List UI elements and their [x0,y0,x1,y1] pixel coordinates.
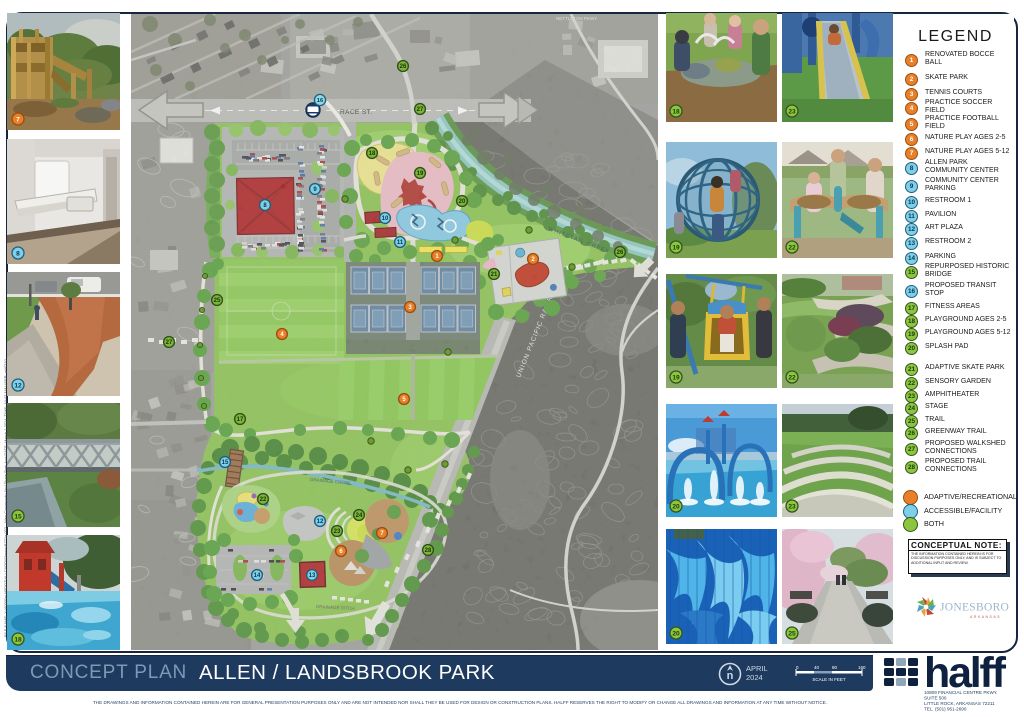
svg-text:11: 11 [397,240,404,246]
svg-text:LITTLE ROCK, ARKANSAS 72211: LITTLE ROCK, ARKANSAS 72211 [924,701,995,706]
svg-text:18: 18 [14,636,22,643]
svg-text:17: 17 [237,417,244,423]
svg-text:TEL. (501) 951-2690: TEL. (501) 951-2690 [924,707,967,712]
svg-text:16: 16 [317,98,324,104]
svg-text:19: 19 [672,244,680,251]
svg-text:14: 14 [254,573,261,579]
svg-text:22: 22 [260,497,267,503]
svg-text:SCALE IN FEET: SCALE IN FEET [812,677,846,682]
svg-text:26: 26 [617,250,624,256]
svg-text:JONESBORO: JONESBORO [940,602,1009,614]
svg-text:18: 18 [369,151,376,157]
svg-text:8: 8 [16,250,20,257]
svg-text:19: 19 [672,374,680,381]
svg-text:15: 15 [222,460,229,466]
svg-text:19: 19 [417,171,424,177]
svg-text:40: 40 [814,665,820,670]
svg-text:25: 25 [788,630,796,637]
svg-text:27: 27 [166,340,173,346]
svg-text:18: 18 [672,108,680,115]
svg-text:80: 80 [832,665,838,670]
svg-text:26: 26 [400,64,407,70]
svg-text:n: n [727,670,734,682]
svg-text:10: 10 [382,216,389,222]
svg-text:28: 28 [425,548,432,554]
svg-text:20: 20 [672,503,680,510]
svg-text:7: 7 [16,116,20,123]
svg-text:10809 FINANCIAL CENTRE PKWY.: 10809 FINANCIAL CENTRE PKWY. [924,690,998,695]
svg-text:21: 21 [491,272,498,278]
svg-text:12: 12 [317,519,324,525]
svg-text:SUITE 500: SUITE 500 [924,696,947,701]
svg-text:12: 12 [14,382,22,389]
svg-text:ARKANSAS: ARKANSAS [970,615,1001,619]
svg-text:27: 27 [417,107,424,113]
svg-text:22: 22 [788,374,796,381]
svg-text:22: 22 [788,244,796,251]
svg-text:13: 13 [309,573,316,579]
svg-text:23: 23 [334,529,341,535]
svg-text:20: 20 [459,199,466,205]
svg-text:15: 15 [14,513,22,520]
svg-text:24: 24 [356,513,363,519]
svg-text:20: 20 [672,630,680,637]
svg-text:23: 23 [788,108,796,115]
svg-text:25: 25 [214,298,221,304]
svg-text:23: 23 [788,503,796,510]
